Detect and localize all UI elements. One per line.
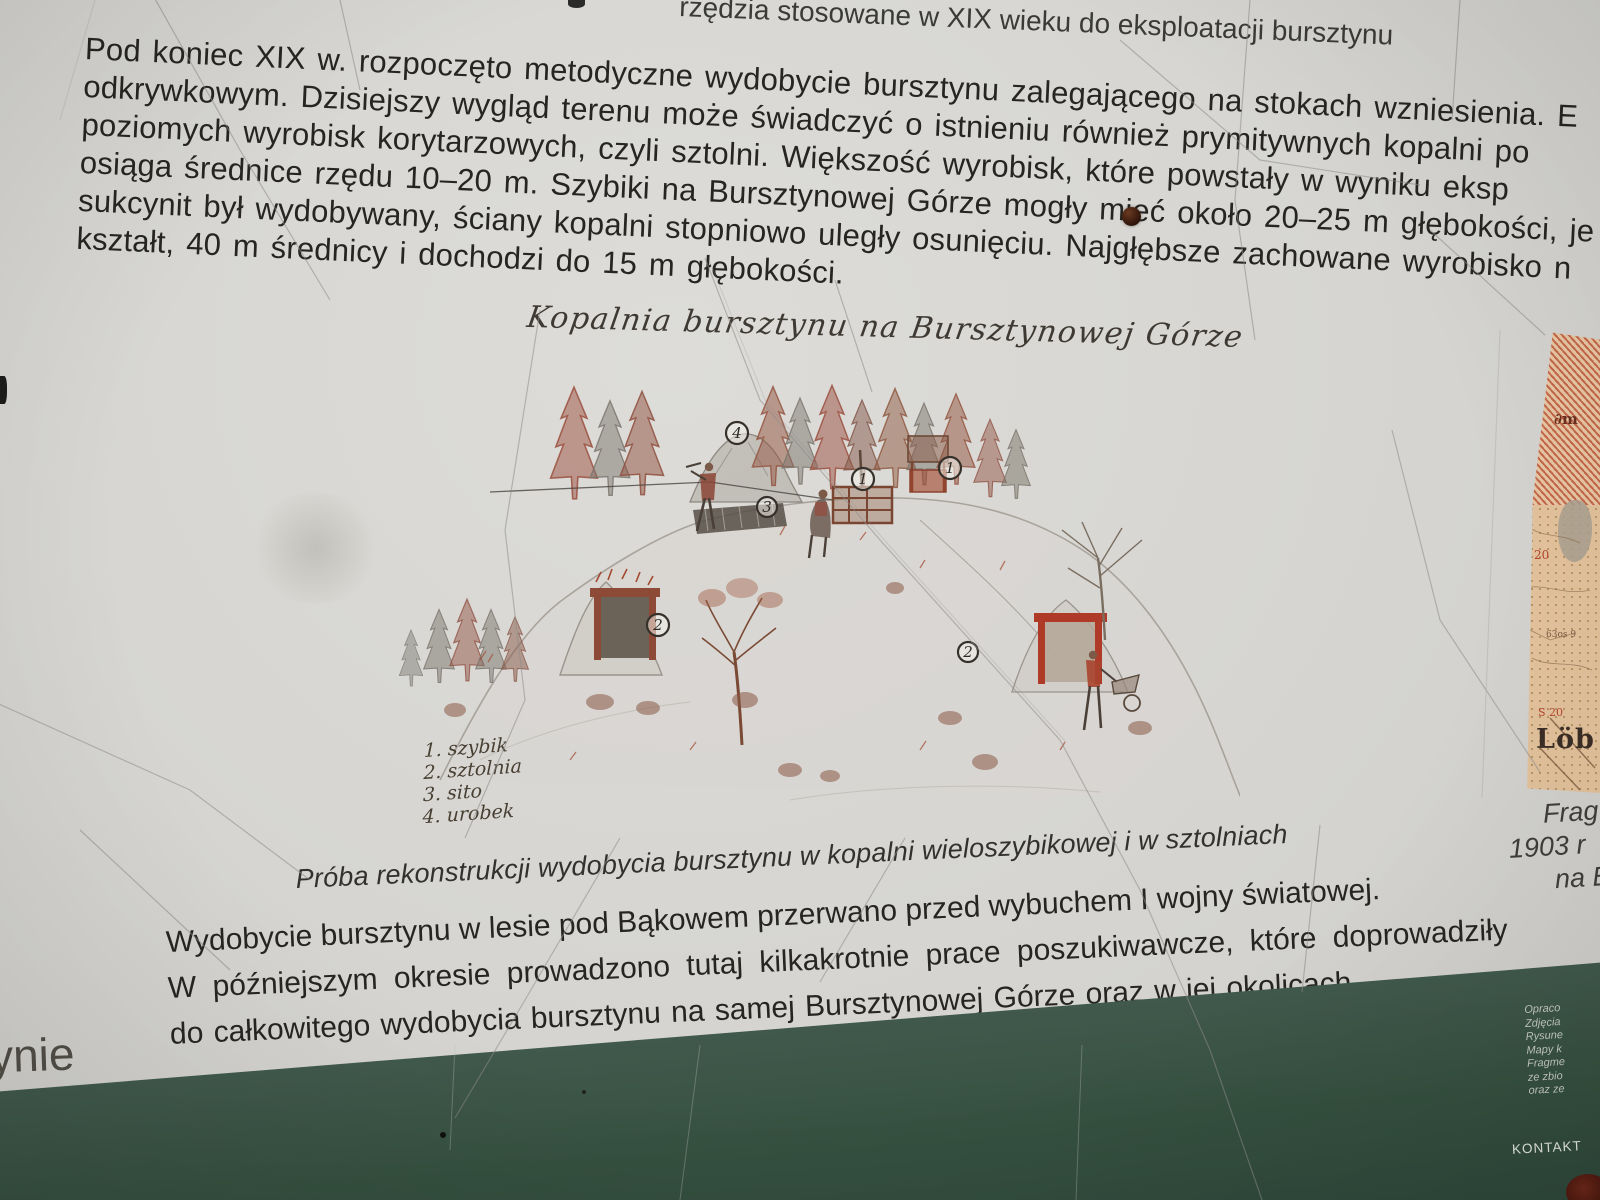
map-label-s20: S 20 [1538, 706, 1563, 719]
marker-1a: 1 [852, 468, 874, 490]
map-label-20: 20 [1534, 548, 1549, 562]
map-label-dm: ∂m [1554, 410, 1578, 428]
credits-line-7: oraz ze [1528, 1083, 1567, 1098]
left-edge-mark [0, 376, 7, 404]
sketch-legend: 1. szybik 2. sztolnia 3. sito 4. urobek [422, 733, 522, 828]
svg-text:1: 1 [945, 459, 955, 477]
marker-4: 4 [726, 422, 748, 444]
map-caption-line-3: na B [1554, 860, 1600, 896]
svg-text:2: 2 [652, 616, 663, 634]
credits-line-1: Opraco [1524, 1002, 1563, 1017]
map-caption-line-1: Frag [1542, 794, 1600, 831]
credits-block: Opraco Zdjęcia Rysune Mapy k Fragme ze z… [1524, 1002, 1567, 1098]
marker-2a: 2 [647, 614, 669, 636]
marker-3: 3 [757, 497, 777, 517]
historic-map-fragment: ∂m 20 63os 9 S 20 Löb [1520, 328, 1600, 793]
marker-2b: 2 [958, 642, 978, 662]
photographed-information-board: rzędzia stosowane w XIX wieku do eksploa… [0, 0, 1600, 1200]
credits-line-5: Fragme [1527, 1056, 1566, 1071]
svg-text:1: 1 [858, 470, 868, 488]
map-caption: Frag 1903 r na B [1506, 794, 1600, 899]
map-label-loeb: Löb [1536, 724, 1595, 755]
marker-1b: 1 [939, 457, 961, 479]
speck-mark-2 [582, 1090, 586, 1094]
cropped-word-fragment: ynie [0, 1027, 75, 1084]
credits-line-3: Rysune [1525, 1029, 1564, 1044]
map-label-63os9: 63os 9 [1546, 630, 1576, 640]
svg-text:3: 3 [762, 498, 772, 516]
svg-text:2: 2 [962, 643, 973, 661]
nail-hole-mark [1122, 207, 1141, 226]
top-edge-mark [568, 0, 585, 8]
top-strip-headline: rzędzia stosowane w XIX wieku do eksploa… [679, 0, 1394, 52]
hill-outline [440, 498, 1240, 800]
speck-mark-1 [440, 1132, 446, 1138]
map-caption-line-2: 1903 r [1508, 827, 1600, 866]
intro-paragraph: Pod koniec XIX w. rozpoczęto metodyczne … [76, 30, 1600, 327]
svg-text:4: 4 [731, 424, 742, 442]
